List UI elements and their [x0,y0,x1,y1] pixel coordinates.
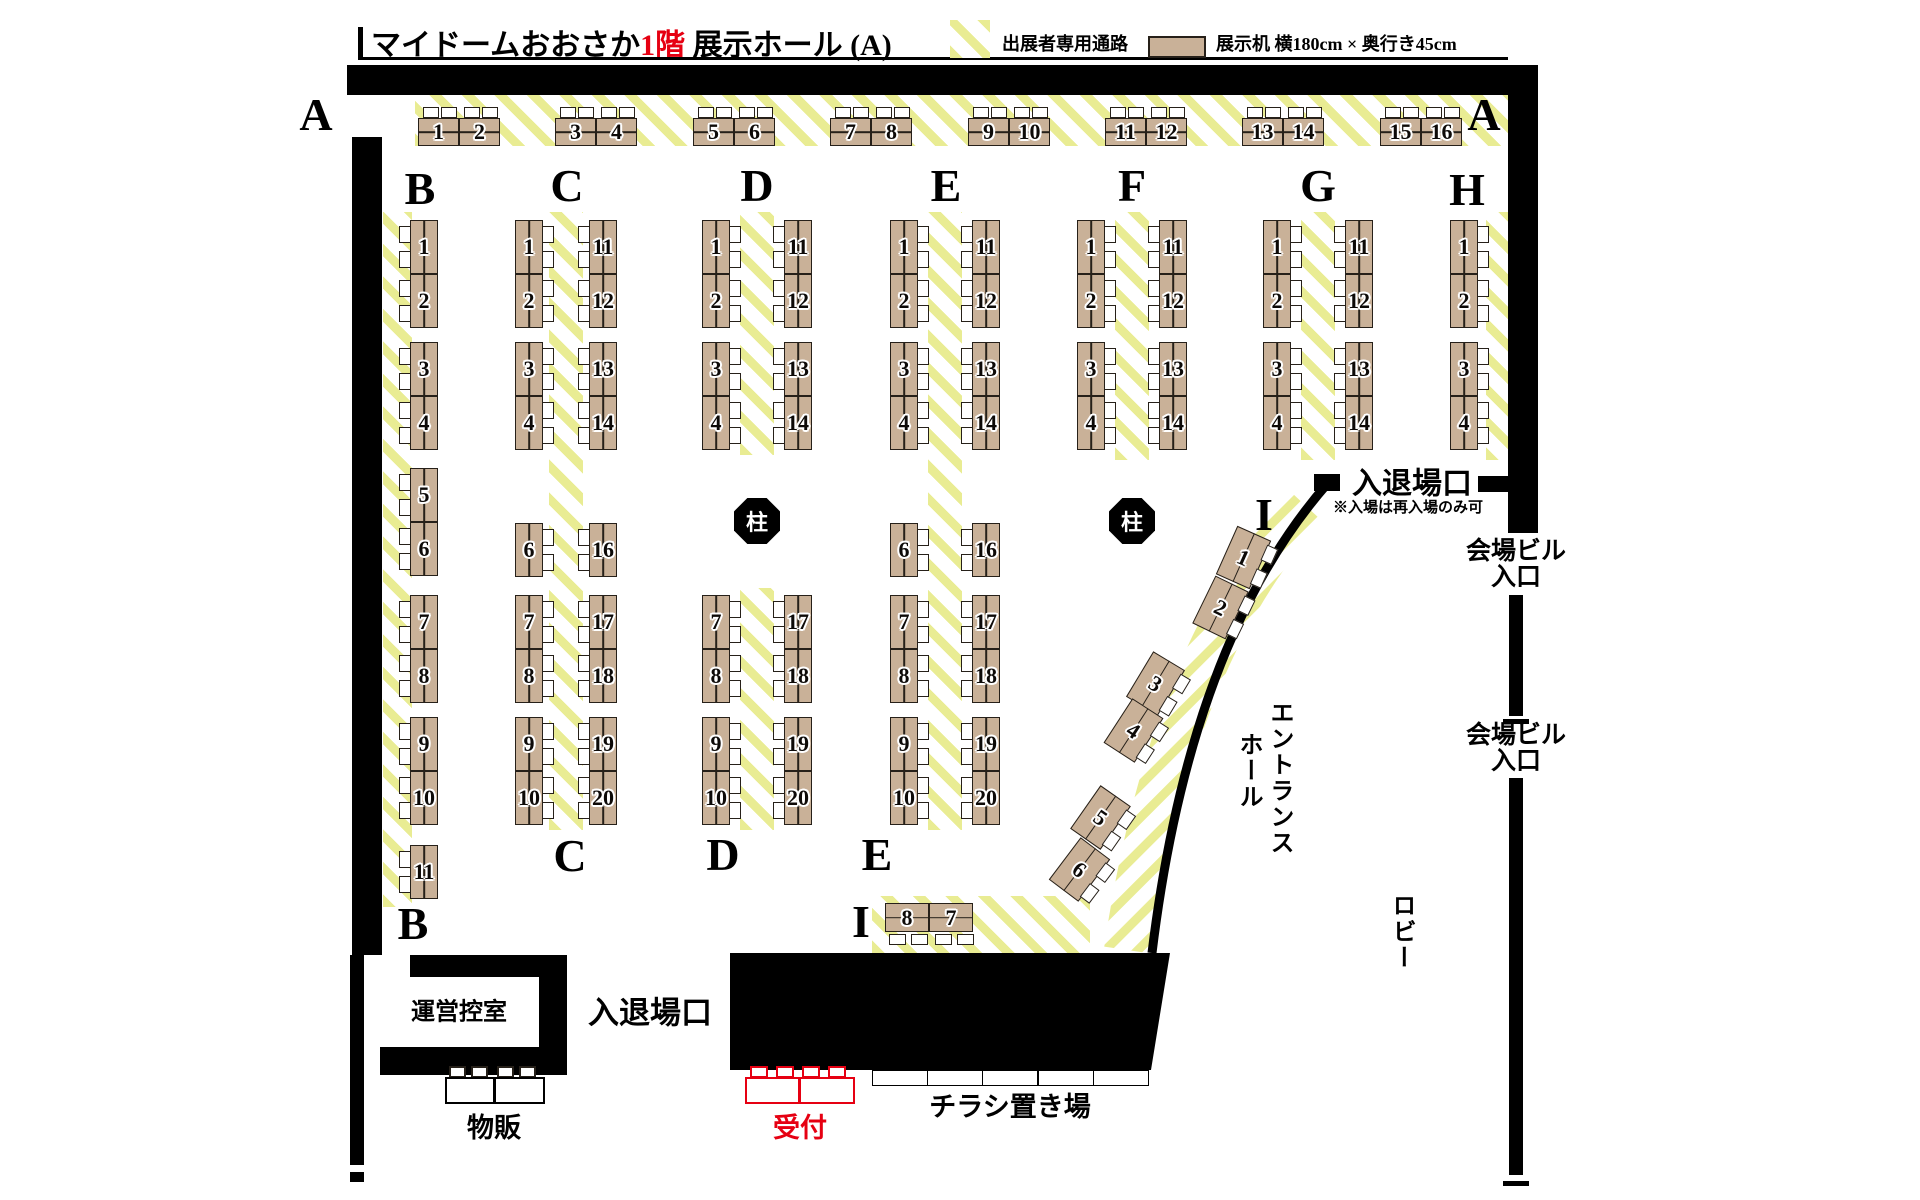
merch-table [445,1077,495,1104]
booth-D_right-17: 17 [784,595,812,649]
chair-icon [1334,305,1346,322]
booth-number: 13 [1252,121,1274,143]
chair-icon [961,251,973,268]
booth-number: 16 [975,539,997,561]
chair-icon [1290,402,1302,419]
wall-top [347,65,1538,95]
booth-D_left-2: 2 [702,274,730,328]
chair-icon [911,934,928,945]
chair-icon [729,723,741,740]
chair-icon [578,348,590,365]
chair-icon [542,402,554,419]
booth-number: 8 [899,665,910,687]
booth-number: 13 [1348,358,1370,380]
booth-C_right-19: 19 [589,717,617,771]
booth-number: 14 [1293,121,1315,143]
chair-icon [973,107,989,118]
entrance-hall-label: エントランスホール [1232,700,1294,870]
chair-icon [961,402,973,419]
booth-number: 12 [975,290,997,312]
booth-B-1: 1 [410,220,438,274]
chair-icon [729,601,741,618]
staff-room-label: 運営控室 [411,1000,507,1025]
chair-icon [773,601,785,618]
chair-icon [578,280,590,297]
booth-A-4: 4 [596,118,637,146]
chair-icon [1334,280,1346,297]
chair-icon [1477,373,1489,390]
booth-C_left-3: 3 [515,342,543,396]
booth-B-8: 8 [410,649,438,703]
booth-number: 1 [419,236,430,258]
booth-G_right-13: 13 [1345,342,1373,396]
chair-icon [957,934,974,945]
booth-number: 1 [899,236,910,258]
chair-icon [961,802,973,819]
chair-icon [773,402,785,419]
booth-H-3: 3 [1450,342,1478,396]
booth-number: 10 [893,787,915,809]
booth-G_left-2: 2 [1263,274,1291,328]
chair-icon [1148,348,1160,365]
booth-number: 4 [1123,718,1144,742]
chair-icon [1403,107,1419,118]
booth-A-10: 10 [1009,118,1050,146]
booth-number: 6 [419,538,430,560]
chair-icon [578,305,590,322]
booth-number: 20 [787,787,809,809]
chair-icon [729,251,741,268]
booth-E_left-3: 3 [890,342,918,396]
booth-number: 19 [787,733,809,755]
flyer-table [927,1070,983,1086]
section-letter-I: I [1255,492,1273,538]
booth-E_right-14: 14 [972,396,1000,450]
chair-icon [1148,402,1160,419]
chair-icon [773,655,785,672]
booth-number: 2 [1086,290,1097,312]
booth-number: 7 [711,611,722,633]
booth-I-7: 7 [929,903,973,932]
booth-D_right-13: 13 [784,342,812,396]
chair-icon [542,529,554,546]
booth-number: 8 [711,665,722,687]
chair-icon [464,107,480,118]
entrance-top-note: ※入場は再入場のみ可 [1333,501,1483,517]
booth-number: 18 [975,665,997,687]
building-entrance-1-line2: 入口 [1466,565,1566,591]
chair-icon [1334,402,1346,419]
chair-icon [1444,107,1460,118]
chair-icon [399,402,411,419]
chair-icon [399,601,411,618]
booth-A-7: 7 [830,118,871,146]
chair-icon [399,373,411,390]
booth-number: 15 [1390,121,1412,143]
chair-icon [578,226,590,243]
chair-icon [1288,107,1304,118]
flyer-table [1093,1070,1149,1086]
chair-icon [1148,427,1160,444]
section-letter-H: H [1449,167,1485,213]
chair-icon [729,226,741,243]
wall-left [352,137,382,955]
booth-E_right-18: 18 [972,649,1000,703]
booth-number: 13 [975,358,997,380]
booth-A-2: 2 [459,118,500,146]
chair-icon [961,427,973,444]
chair-icon [729,280,741,297]
booth-H-1: 1 [1450,220,1478,274]
booth-A-8: 8 [871,118,912,146]
chair-icon [1290,226,1302,243]
chair-icon [716,107,732,118]
booth-A-3: 3 [555,118,596,146]
booth-B-5: 5 [410,468,438,522]
chair-icon [961,348,973,365]
booth-H-2: 2 [1450,274,1478,328]
chair-icon [991,107,1007,118]
booth-number: 2 [899,290,910,312]
booth-number: 10 [413,787,435,809]
booth-C_right-11: 11 [589,220,617,274]
chair-icon [961,777,973,794]
booth-number: 7 [946,907,957,929]
booth-number: 2 [419,290,430,312]
chair-icon [1477,226,1489,243]
chair-icon [773,251,785,268]
booth-number: 19 [975,733,997,755]
chair-icon [1148,280,1160,297]
chair-icon [578,554,590,571]
booth-G_left-3: 3 [1263,342,1291,396]
chair-icon [542,373,554,390]
booth-number: 4 [524,412,535,434]
booth-B-11: 11 [410,845,438,899]
booth-number: 9 [899,733,910,755]
booth-number: 11 [1115,121,1136,143]
booth-number: 19 [592,733,614,755]
booth-number: 5 [1090,805,1112,829]
chair-icon [542,554,554,571]
booth-F_right-12: 12 [1159,274,1187,328]
chair-icon [773,777,785,794]
booth-C_left-1: 1 [515,220,543,274]
chair-icon [729,402,741,419]
chair-icon [1290,373,1302,390]
chair-icon [1334,348,1346,365]
booth-D_left-10: 10 [702,771,730,825]
chair-icon [961,373,973,390]
chair-icon [729,305,741,322]
booth-G_right-14: 14 [1345,396,1373,450]
booth-E_left-9: 9 [890,717,918,771]
booth-number: 6 [749,121,760,143]
booth-D_right-19: 19 [784,717,812,771]
chair-icon [399,226,411,243]
booth-F_right-11: 11 [1159,220,1187,274]
wall-right-mid2 [1509,778,1523,1175]
chair-icon [1477,427,1489,444]
chair-icon [773,680,785,697]
chair-icon [542,305,554,322]
chair-icon [1104,226,1116,243]
booth-D_right-14: 14 [784,396,812,450]
booth-B-9: 9 [410,717,438,771]
chair-icon [1290,280,1302,297]
booth-number: 7 [899,611,910,633]
chair-icon [1426,107,1442,118]
section-letter-C: C [550,163,583,209]
chair-icon [399,499,411,516]
booth-number: 17 [787,611,809,633]
booth-C_right-18: 18 [589,649,617,703]
booth-number: 3 [1145,671,1166,696]
booth-number: 3 [1459,358,1470,380]
booth-A-13: 13 [1242,118,1283,146]
chair-icon [578,655,590,672]
booth-number: 4 [1086,412,1097,434]
booth-number: 4 [711,412,722,434]
chair-icon [619,107,635,118]
chair-icon [1290,427,1302,444]
booth-D_left-4: 4 [702,396,730,450]
booth-G_right-12: 12 [1345,274,1373,328]
booth-number: 1 [433,121,444,143]
chair-icon [917,723,929,740]
booth-D_right-12: 12 [784,274,812,328]
chair-icon [542,748,554,765]
section-letter-E: E [931,163,962,209]
booth-D_left-3: 3 [702,342,730,396]
booth-A-1: 1 [418,118,459,146]
entrance-block [730,953,1170,1070]
section-letter-F: F [1118,163,1146,209]
chair-icon [399,680,411,697]
chair-icon [542,348,554,365]
flyer-table [872,1070,928,1086]
chair-icon [853,107,869,118]
chair-icon [1477,280,1489,297]
booth-number: 4 [1459,412,1470,434]
booth-number: 12 [1156,121,1178,143]
booth-number: 3 [1086,358,1097,380]
booth-C_left-2: 2 [515,274,543,328]
booth-number: 9 [983,121,994,143]
chair-icon [399,474,411,491]
booth-H-4: 4 [1450,396,1478,450]
chair-icon [961,601,973,618]
chair-icon [482,107,498,118]
chair-icon [773,280,785,297]
chair-icon [961,680,973,697]
pillar-icon-2: 柱 [1109,498,1155,544]
booth-number: 14 [1162,412,1184,434]
booth-C_right-16: 16 [589,523,617,577]
chair-icon [1334,226,1346,243]
booth-I-8: 8 [885,903,929,932]
chair-icon [1334,427,1346,444]
booth-number: 7 [845,121,856,143]
wall-right-upper [1508,65,1538,533]
booth-B-3: 3 [410,342,438,396]
booth-E_left-10: 10 [890,771,918,825]
booth-number: 3 [419,358,430,380]
chair-icon [773,348,785,365]
chair-icon [1148,373,1160,390]
chair-icon [773,626,785,643]
chair-icon [1104,305,1116,322]
booth-C_left-6: 6 [515,523,543,577]
chair-icon [542,723,554,740]
chair-icon [917,226,929,243]
booth-D_left-7: 7 [702,595,730,649]
booth-number: 13 [787,358,809,380]
booth-number: 16 [592,539,614,561]
section-letter-B: B [398,901,429,947]
chair-icon [961,280,973,297]
building-entrance-1-line1: 会場ビル [1466,539,1566,565]
booth-number: 5 [708,121,719,143]
chair-icon [399,348,411,365]
booth-C_right-17: 17 [589,595,617,649]
booth-number: 17 [592,611,614,633]
chair-icon [876,107,892,118]
wall-left-lower [350,955,364,1165]
booth-number: 11 [976,236,997,258]
chair-icon [1477,348,1489,365]
booth-number: 1 [1234,545,1253,570]
chair-icon [1265,107,1281,118]
chair-icon [917,626,929,643]
chair-icon [894,107,910,118]
chair-icon [399,748,411,765]
chair-icon [1104,427,1116,444]
chair-icon [961,723,973,740]
booth-number: 12 [787,290,809,312]
booth-D_right-20: 20 [784,771,812,825]
booth-number: 11 [593,236,614,258]
chair-icon [399,280,411,297]
booth-number: 2 [711,290,722,312]
chair-icon [917,748,929,765]
booth-C_left-7: 7 [515,595,543,649]
booth-D_left-8: 8 [702,649,730,703]
chair-icon [399,723,411,740]
chair-icon [729,777,741,794]
chair-icon [578,802,590,819]
chair-icon [560,107,576,118]
section-letter-A: A [1467,92,1500,138]
chair-icon [542,280,554,297]
floor-plan: マイドームおおさか1階 展示ホール (A) 出展者専用通路 展示机 横180cm… [0,0,1920,1200]
wall-right-mid1 [1509,595,1523,716]
section-letter-G: G [1300,163,1336,209]
flyer-table [982,1070,1038,1086]
booth-number: 7 [524,611,535,633]
chair-icon [1169,107,1185,118]
booth-number: 3 [711,358,722,380]
chair-icon [773,226,785,243]
chair-icon [739,107,755,118]
section-letter-B: B [405,166,436,212]
booth-C_right-12: 12 [589,274,617,328]
chair-icon [578,723,590,740]
chair-icon [961,655,973,672]
booth-B-6: 6 [410,522,438,576]
booth-number: 3 [899,358,910,380]
chair-icon [601,107,617,118]
chair-icon [1477,305,1489,322]
chair-icon [1104,402,1116,419]
chair-icon [698,107,714,118]
booth-number: 16 [1431,121,1453,143]
chair-icon [399,876,411,893]
chair-icon [835,107,851,118]
booth-E_left-4: 4 [890,396,918,450]
chair-icon [1104,348,1116,365]
entrance-top-label: 入退場口 [1352,468,1472,500]
chair-icon [1290,305,1302,322]
chair-icon [961,305,973,322]
section-letter-A: A [299,92,332,138]
section-letter-C: C [553,833,586,879]
booth-D_right-18: 18 [784,649,812,703]
booth-number: 1 [711,236,722,258]
booth-number: 10 [1019,121,1041,143]
chair-icon [917,655,929,672]
chair-icon [773,373,785,390]
flyer-table [1038,1070,1094,1086]
booth-number: 13 [1162,358,1184,380]
booth-number: 6 [524,539,535,561]
chair-icon [729,427,741,444]
chair-icon [917,554,929,571]
booth-E_right-13: 13 [972,342,1000,396]
chair-icon [578,107,594,118]
booth-E_right-12: 12 [972,274,1000,328]
chair-icon [399,655,411,672]
booth-D_right-11: 11 [784,220,812,274]
chair-icon [917,373,929,390]
merch-label: 物販 [467,1114,521,1142]
chair-icon [578,601,590,618]
booth-A-16: 16 [1421,118,1462,146]
booth-number: 2 [1211,595,1231,620]
chair-icon [961,748,973,765]
chair-icon [729,748,741,765]
chair-icon [729,655,741,672]
booth-number: 12 [1162,290,1184,312]
chair-icon [423,107,439,118]
chair-icon [1290,348,1302,365]
booth-number: 4 [899,412,910,434]
chair-icon [961,626,973,643]
booth-number: 8 [902,907,913,929]
chair-icon [1477,251,1489,268]
booth-number: 1 [524,236,535,258]
booth-number: 1 [1086,236,1097,258]
booth-number: 10 [518,787,540,809]
chair-icon [399,626,411,643]
entrance-bottom-label: 入退場口 [588,998,712,1031]
reception-label: 受付 [773,1114,827,1142]
chair-icon [917,280,929,297]
booth-number: 1 [1272,236,1283,258]
lobby-label: ロビー [1384,893,1419,973]
booth-A-15: 15 [1380,118,1421,146]
chair-icon [1477,402,1489,419]
